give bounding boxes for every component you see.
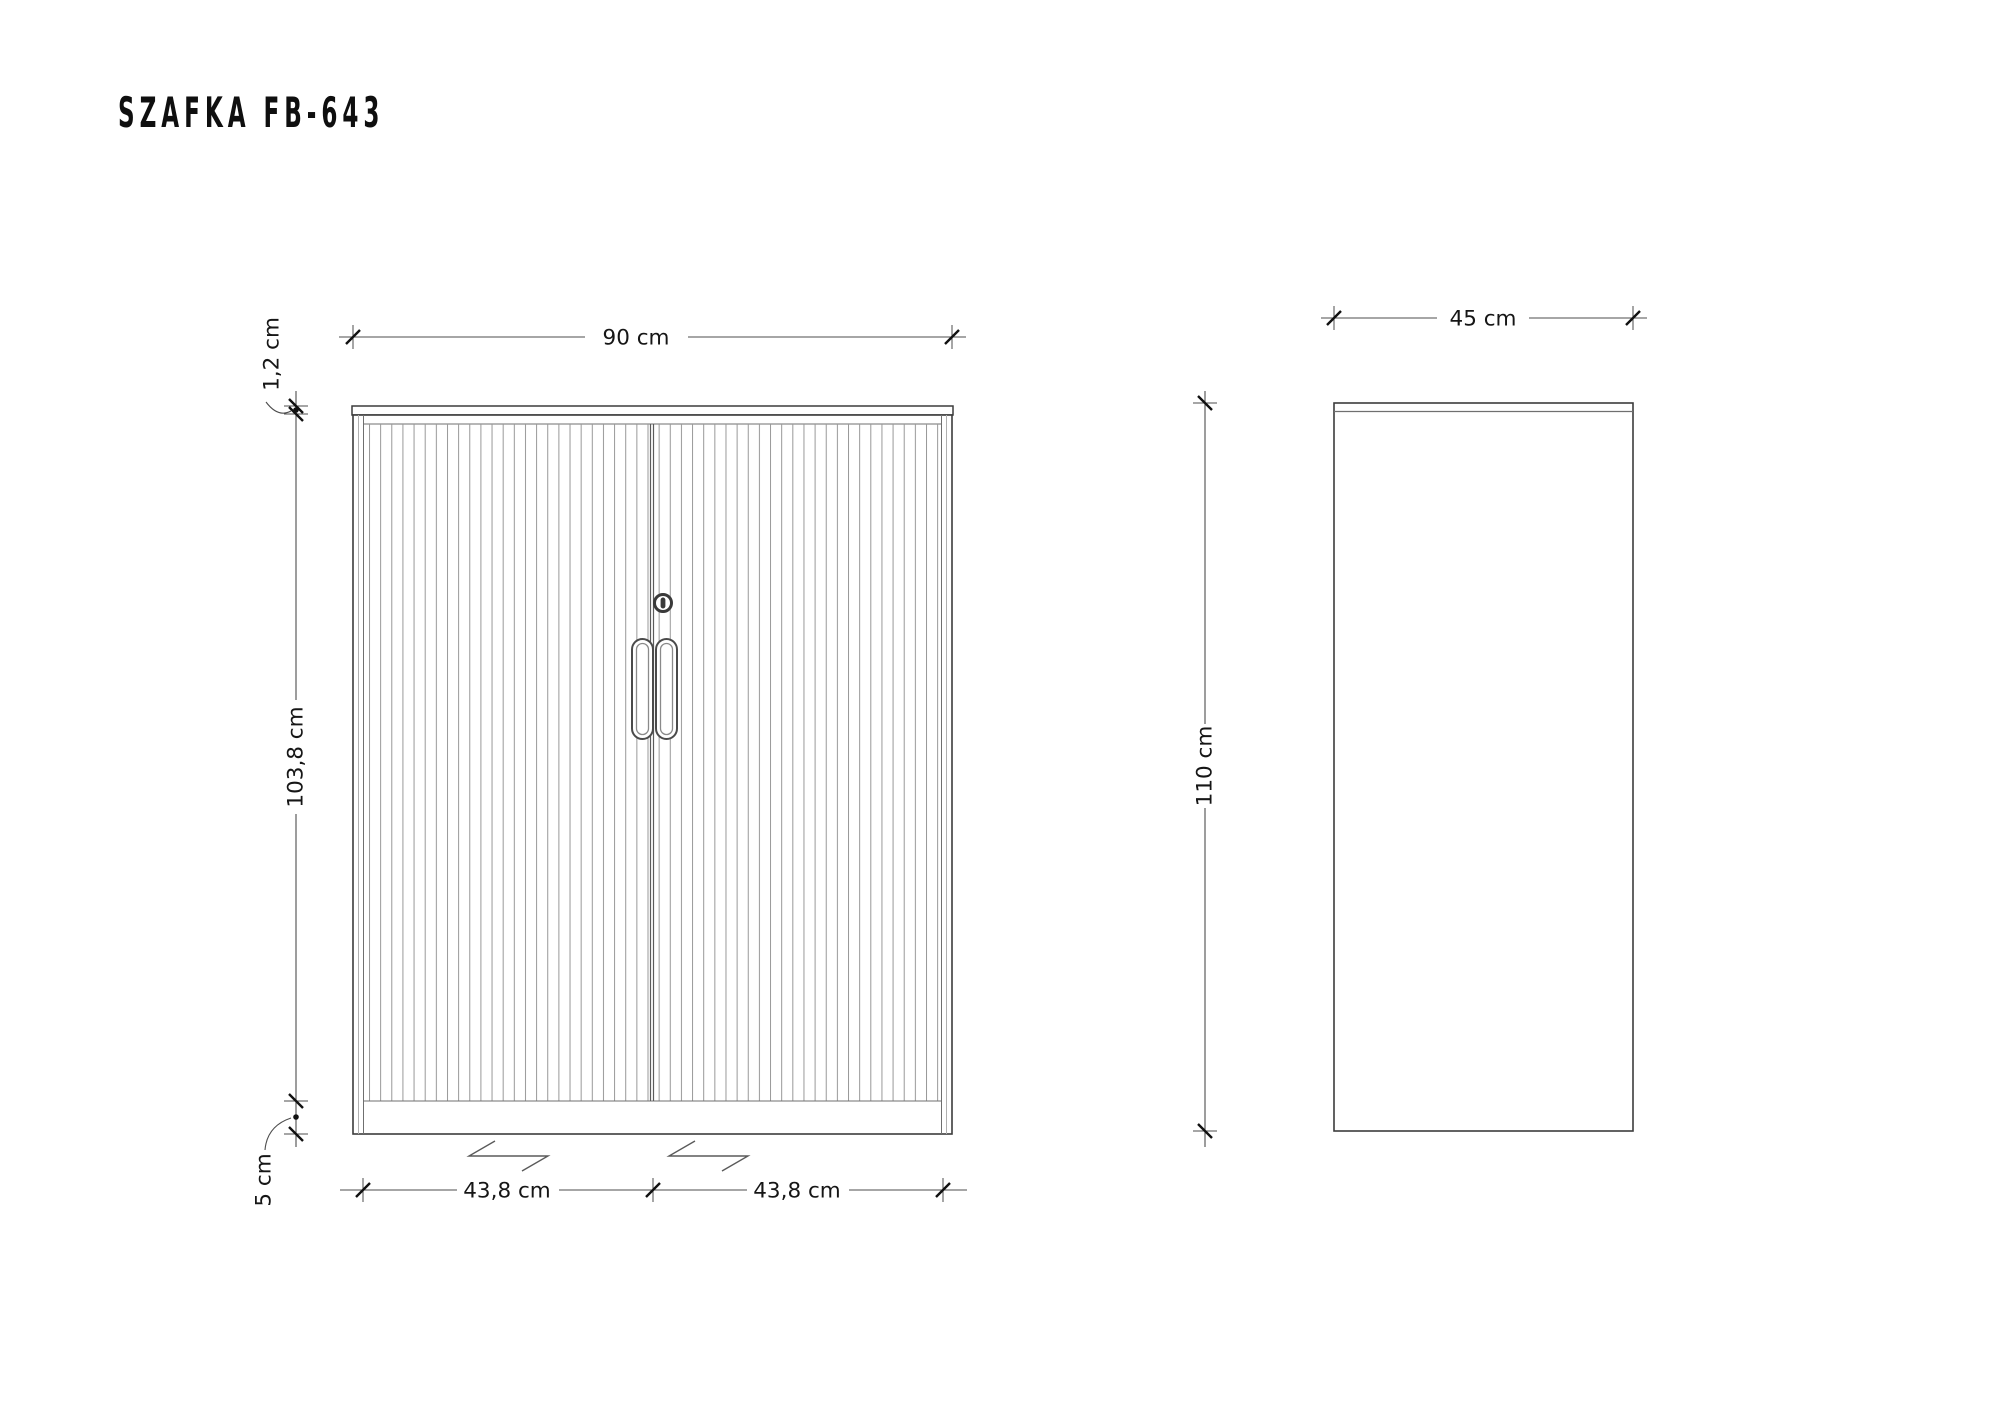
- dim-label-plinth: 5 cm: [252, 1153, 277, 1206]
- front-view: [352, 406, 953, 1171]
- leader-dot-top-panel: [293, 407, 299, 413]
- dimension-door-widths: 43,8 cm 43,8 cm: [340, 1178, 967, 1204]
- front-top-panel: [352, 406, 953, 415]
- cabinet-drawing: 90 cm 1,2 cm 103,8 cm 5 cm: [0, 0, 2000, 1414]
- door-handle-left: [632, 639, 653, 739]
- dim-label-left-door: 43,8 cm: [463, 1179, 550, 1204]
- dim-label-side-height: 110 cm: [1193, 726, 1218, 807]
- dim-label-side-depth: 45 cm: [1450, 307, 1517, 332]
- dimension-side-depth: 45 cm: [1321, 306, 1647, 332]
- slide-direction-arrow-right: [669, 1141, 748, 1171]
- dim-label-right-door: 43,8 cm: [753, 1179, 840, 1204]
- lock-keyhole-icon: [655, 595, 672, 612]
- side-body-outline: [1334, 403, 1633, 1131]
- leader-top-panel: [266, 402, 291, 413]
- dimension-front-heights: 1,2 cm 103,8 cm 5 cm: [252, 317, 309, 1207]
- dimension-front-width: 90 cm: [339, 325, 966, 351]
- door-handle-right: [656, 639, 677, 739]
- technical-drawing-sheet: SZAFKA FB-643: [0, 0, 2000, 1414]
- dim-label-body-height: 103,8 cm: [284, 706, 309, 807]
- slide-direction-arrow-left: [469, 1141, 548, 1171]
- dim-label-front-width: 90 cm: [603, 326, 670, 351]
- leader-dot-plinth: [293, 1114, 299, 1120]
- dimension-side-height: 110 cm: [1193, 391, 1218, 1147]
- side-view: [1334, 403, 1633, 1131]
- tambour-door-slats: [363, 424, 942, 1101]
- dim-label-top-panel: 1,2 cm: [260, 317, 285, 391]
